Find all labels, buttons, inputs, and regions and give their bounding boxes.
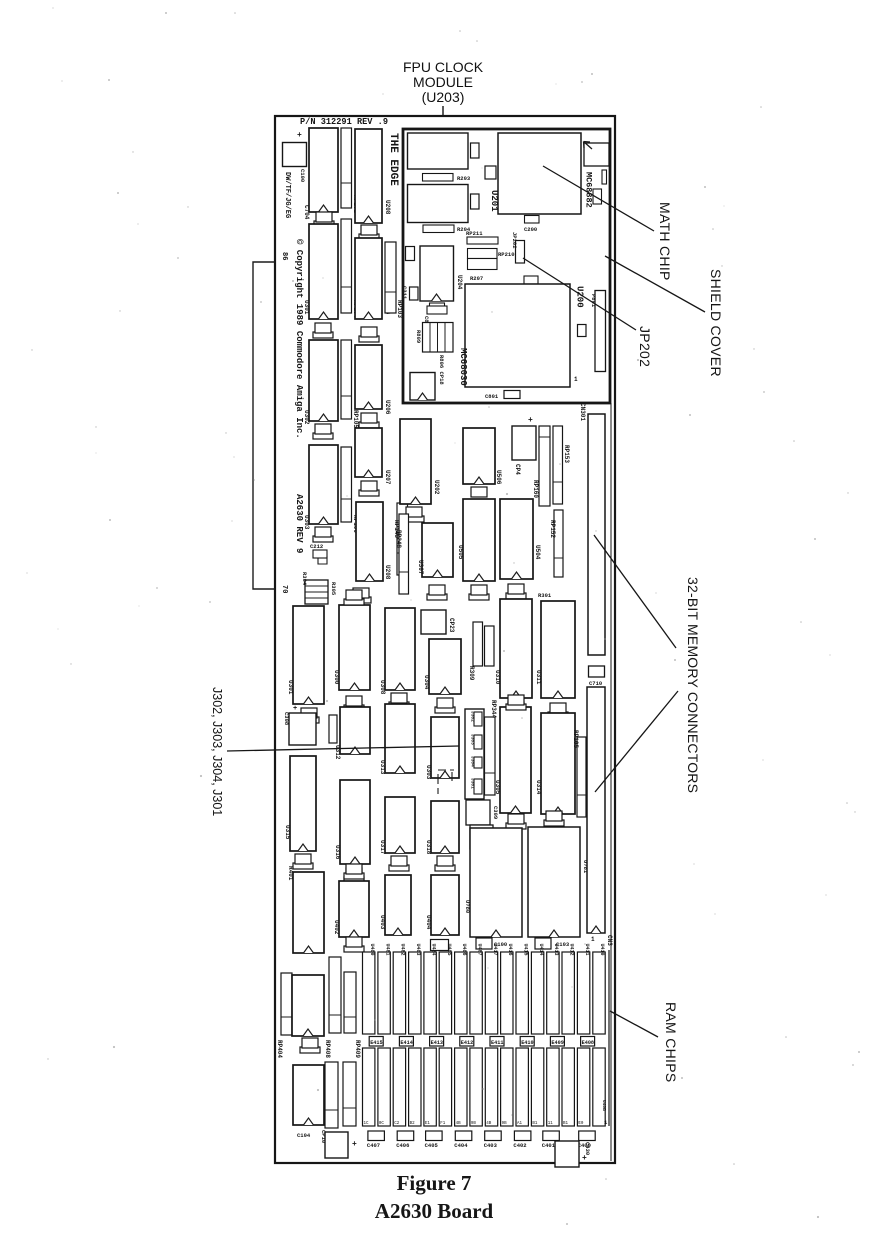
svg-text:+: + bbox=[293, 705, 297, 713]
svg-text:THE EDGE: THE EDGE bbox=[387, 133, 399, 186]
svg-text:0C: 0C bbox=[379, 1122, 385, 1126]
svg-text:U308: U308 bbox=[379, 680, 386, 695]
svg-text:U303: U303 bbox=[425, 765, 432, 780]
svg-text:R301: R301 bbox=[538, 592, 552, 599]
svg-text:U207: U207 bbox=[384, 470, 391, 485]
svg-text:C2: C2 bbox=[394, 1122, 400, 1126]
svg-text:CP10: CP10 bbox=[320, 1130, 327, 1143]
svg-text:CN301: CN301 bbox=[579, 403, 586, 421]
svg-text:C212: C212 bbox=[310, 543, 323, 550]
svg-text:JP202: JP202 bbox=[637, 326, 653, 367]
svg-text:U403: U403 bbox=[379, 915, 386, 930]
svg-text:CN3: CN3 bbox=[606, 935, 613, 946]
svg-text:B2: B2 bbox=[410, 1122, 416, 1126]
svg-text:C309: C309 bbox=[492, 806, 499, 819]
svg-text:U482: U482 bbox=[400, 944, 406, 956]
svg-text:C406: C406 bbox=[396, 1142, 409, 1149]
svg-text:RAM CHIPS: RAM CHIPS bbox=[663, 1002, 679, 1083]
svg-text:C710: C710 bbox=[589, 680, 602, 687]
svg-text:R305: R305 bbox=[330, 582, 337, 596]
svg-text:U310: U310 bbox=[494, 670, 501, 685]
svg-text:RP344: RP344 bbox=[490, 700, 497, 718]
svg-text:R806 CP18: R806 CP18 bbox=[438, 355, 445, 385]
svg-text:70: 70 bbox=[280, 585, 288, 593]
svg-text:U307: U307 bbox=[417, 560, 424, 575]
svg-text:E415: E415 bbox=[370, 1040, 382, 1046]
svg-text:RP211: RP211 bbox=[466, 230, 483, 237]
svg-text:U506: U506 bbox=[495, 470, 502, 485]
svg-text:U208: U208 bbox=[384, 200, 391, 215]
svg-text:+: + bbox=[297, 131, 302, 140]
svg-text:R203: R203 bbox=[457, 175, 471, 182]
svg-text:C403: C403 bbox=[484, 1142, 498, 1149]
svg-text:U?81: U?81 bbox=[582, 860, 589, 874]
svg-text:(U203): (U203) bbox=[422, 89, 465, 105]
svg-text:U301: U301 bbox=[303, 300, 310, 315]
svg-text:E410: E410 bbox=[521, 1040, 533, 1046]
svg-text:DW/TF/JG/EG: DW/TF/JG/EG bbox=[283, 172, 291, 218]
svg-text:U302: U302 bbox=[303, 410, 310, 425]
svg-text:32-BIT MEMORY CONNECTORS: 32-BIT MEMORY CONNECTORS bbox=[685, 577, 701, 793]
svg-text:U410: U410 bbox=[599, 944, 605, 956]
svg-text:RP404: RP404 bbox=[276, 1040, 283, 1058]
svg-text:RP152: RP152 bbox=[549, 520, 556, 538]
svg-text:U486: U486 bbox=[461, 944, 467, 956]
svg-text:U300: U300 bbox=[333, 670, 340, 685]
svg-text:U417: U417 bbox=[492, 944, 498, 956]
svg-text:RP409: RP409 bbox=[354, 1040, 361, 1058]
svg-text:RP105: RP105 bbox=[352, 410, 359, 428]
svg-text:A1: A1 bbox=[517, 1122, 523, 1126]
svg-text:C200: C200 bbox=[524, 226, 537, 233]
svg-text:RP210: RP210 bbox=[498, 251, 515, 258]
svg-text:E1: E1 bbox=[425, 1122, 431, 1126]
svg-text:MODULE: MODULE bbox=[413, 74, 473, 90]
svg-text:U485: U485 bbox=[446, 944, 452, 956]
svg-text:C402: C402 bbox=[513, 1142, 526, 1149]
svg-text:4B: 4B bbox=[486, 1122, 492, 1126]
svg-text:U316: U316 bbox=[334, 845, 341, 860]
svg-text:R809: R809 bbox=[415, 330, 422, 343]
svg-text:R207: R207 bbox=[470, 275, 483, 282]
svg-text:U402: U402 bbox=[333, 920, 340, 935]
svg-text:A2630 Board: A2630 Board bbox=[375, 1199, 494, 1223]
svg-text:9B: 9B bbox=[471, 1122, 477, 1126]
svg-text:MC68030: MC68030 bbox=[458, 348, 468, 386]
svg-text:C100: C100 bbox=[299, 169, 306, 182]
svg-text:+: + bbox=[352, 1140, 357, 1149]
svg-text:P/N 312291 REV .9: P/N 312291 REV .9 bbox=[300, 116, 388, 127]
svg-text:U413: U413 bbox=[553, 944, 559, 956]
svg-text:U303: U303 bbox=[303, 515, 310, 530]
svg-text:FPU CLOCK: FPU CLOCK bbox=[403, 59, 484, 75]
svg-text:U312: U312 bbox=[334, 745, 341, 760]
svg-text:U305: U305 bbox=[494, 780, 501, 795]
svg-text:9B: 9B bbox=[502, 1122, 508, 1126]
svg-text:C407: C407 bbox=[367, 1142, 380, 1149]
svg-text:U317: U317 bbox=[379, 840, 386, 855]
svg-text:F1: F1 bbox=[440, 1122, 446, 1126]
svg-text:U202: U202 bbox=[433, 480, 440, 495]
svg-text:U481: U481 bbox=[384, 944, 390, 956]
svg-text:U415: U415 bbox=[523, 944, 529, 956]
svg-text:RP153: RP153 bbox=[563, 445, 570, 463]
svg-text:E409: E409 bbox=[551, 1040, 563, 1046]
svg-text:RP408: RP408 bbox=[324, 1040, 331, 1058]
svg-text:C405: C405 bbox=[425, 1142, 439, 1149]
svg-text:1: 1 bbox=[591, 936, 595, 943]
svg-text:U301: U301 bbox=[287, 680, 294, 695]
svg-text:JP202: JP202 bbox=[511, 232, 518, 249]
svg-text:E408: E408 bbox=[582, 1040, 594, 1046]
svg-text:+: + bbox=[582, 1154, 587, 1163]
svg-text:U313: U313 bbox=[379, 760, 386, 775]
svg-text:U204: U204 bbox=[456, 275, 463, 290]
svg-text:1: 1 bbox=[574, 376, 578, 383]
svg-text:J304: J304 bbox=[470, 756, 476, 767]
svg-text:U?80: U?80 bbox=[464, 900, 471, 913]
svg-text:J302, J303, J304, J301: J302, J303, J304, J301 bbox=[210, 687, 224, 816]
svg-text:C211: C211 bbox=[401, 286, 408, 300]
svg-text:U201: U201 bbox=[489, 190, 499, 212]
svg-text:RP248: RP248 bbox=[395, 530, 402, 548]
svg-text:U412: U412 bbox=[569, 944, 575, 956]
svg-text:U487: U487 bbox=[476, 944, 482, 956]
svg-text:+: + bbox=[528, 416, 533, 425]
svg-text:MATH CHIP: MATH CHIP bbox=[657, 202, 673, 281]
svg-text:U314: U314 bbox=[535, 780, 542, 795]
svg-text:R401: R401 bbox=[287, 866, 294, 881]
svg-text:C104: C104 bbox=[297, 1132, 311, 1139]
svg-text:U311: U311 bbox=[535, 670, 542, 685]
svg-text:A2630 REV 9: A2630 REV 9 bbox=[294, 494, 304, 553]
svg-text:U404: U404 bbox=[425, 915, 432, 930]
svg-text:U318: U318 bbox=[425, 840, 432, 855]
svg-text:RP160: RP160 bbox=[532, 480, 539, 498]
svg-text:RP103: RP103 bbox=[396, 300, 403, 318]
svg-text:4B: 4B bbox=[456, 1122, 462, 1126]
svg-text:CP23: CP23 bbox=[448, 618, 455, 633]
svg-text:E412: E412 bbox=[461, 1040, 473, 1046]
svg-text:U304: U304 bbox=[423, 675, 430, 690]
svg-text:CP4: CP4 bbox=[514, 464, 521, 475]
svg-text:© Copyright 1989 Commodore Ami: © Copyright 1989 Commodore Amiga Inc. bbox=[294, 239, 304, 439]
svg-text:B1: B1 bbox=[563, 1122, 569, 1126]
svg-text:R304: R304 bbox=[301, 572, 308, 586]
svg-text:U483: U483 bbox=[415, 944, 421, 956]
svg-text:C704: C704 bbox=[303, 205, 310, 220]
svg-text:U484: U484 bbox=[430, 944, 436, 956]
svg-text:U411: U411 bbox=[584, 944, 590, 956]
svg-text:U414: U414 bbox=[538, 944, 544, 956]
svg-text:Figure 7: Figure 7 bbox=[397, 1171, 472, 1195]
svg-text:C430: C430 bbox=[584, 1142, 591, 1155]
svg-text:U416: U416 bbox=[507, 944, 513, 956]
svg-text:J301: J301 bbox=[470, 778, 476, 789]
svg-text:B1: B1 bbox=[532, 1122, 538, 1126]
svg-text:U480: U480 bbox=[369, 944, 375, 956]
svg-text:U504: U504 bbox=[534, 545, 541, 560]
svg-text:RP165: RP165 bbox=[572, 730, 579, 748]
svg-text:U40B: U40B bbox=[601, 1100, 607, 1111]
svg-text:U315: U315 bbox=[284, 825, 291, 840]
svg-text:C401: C401 bbox=[542, 1142, 556, 1149]
svg-text:C308: C308 bbox=[283, 712, 290, 726]
svg-text:E414: E414 bbox=[400, 1040, 412, 1046]
svg-text:J302: J302 bbox=[470, 711, 476, 722]
svg-text:SHIELD COVER: SHIELD COVER bbox=[708, 269, 724, 377]
svg-text:U208: U208 bbox=[384, 565, 391, 580]
svg-text:E411: E411 bbox=[491, 1040, 503, 1046]
svg-text:R309: R309 bbox=[468, 666, 475, 681]
svg-text:C404: C404 bbox=[454, 1142, 468, 1149]
svg-text:86: 86 bbox=[280, 252, 288, 260]
svg-text:U505: U505 bbox=[457, 545, 464, 560]
svg-text:1C: 1C bbox=[364, 1122, 370, 1126]
svg-text:11: 11 bbox=[548, 1122, 554, 1126]
svg-text:U206: U206 bbox=[384, 400, 391, 415]
svg-text:C801: C801 bbox=[485, 393, 499, 400]
svg-text:J303: J303 bbox=[470, 734, 476, 745]
svg-text:E413: E413 bbox=[431, 1040, 443, 1046]
